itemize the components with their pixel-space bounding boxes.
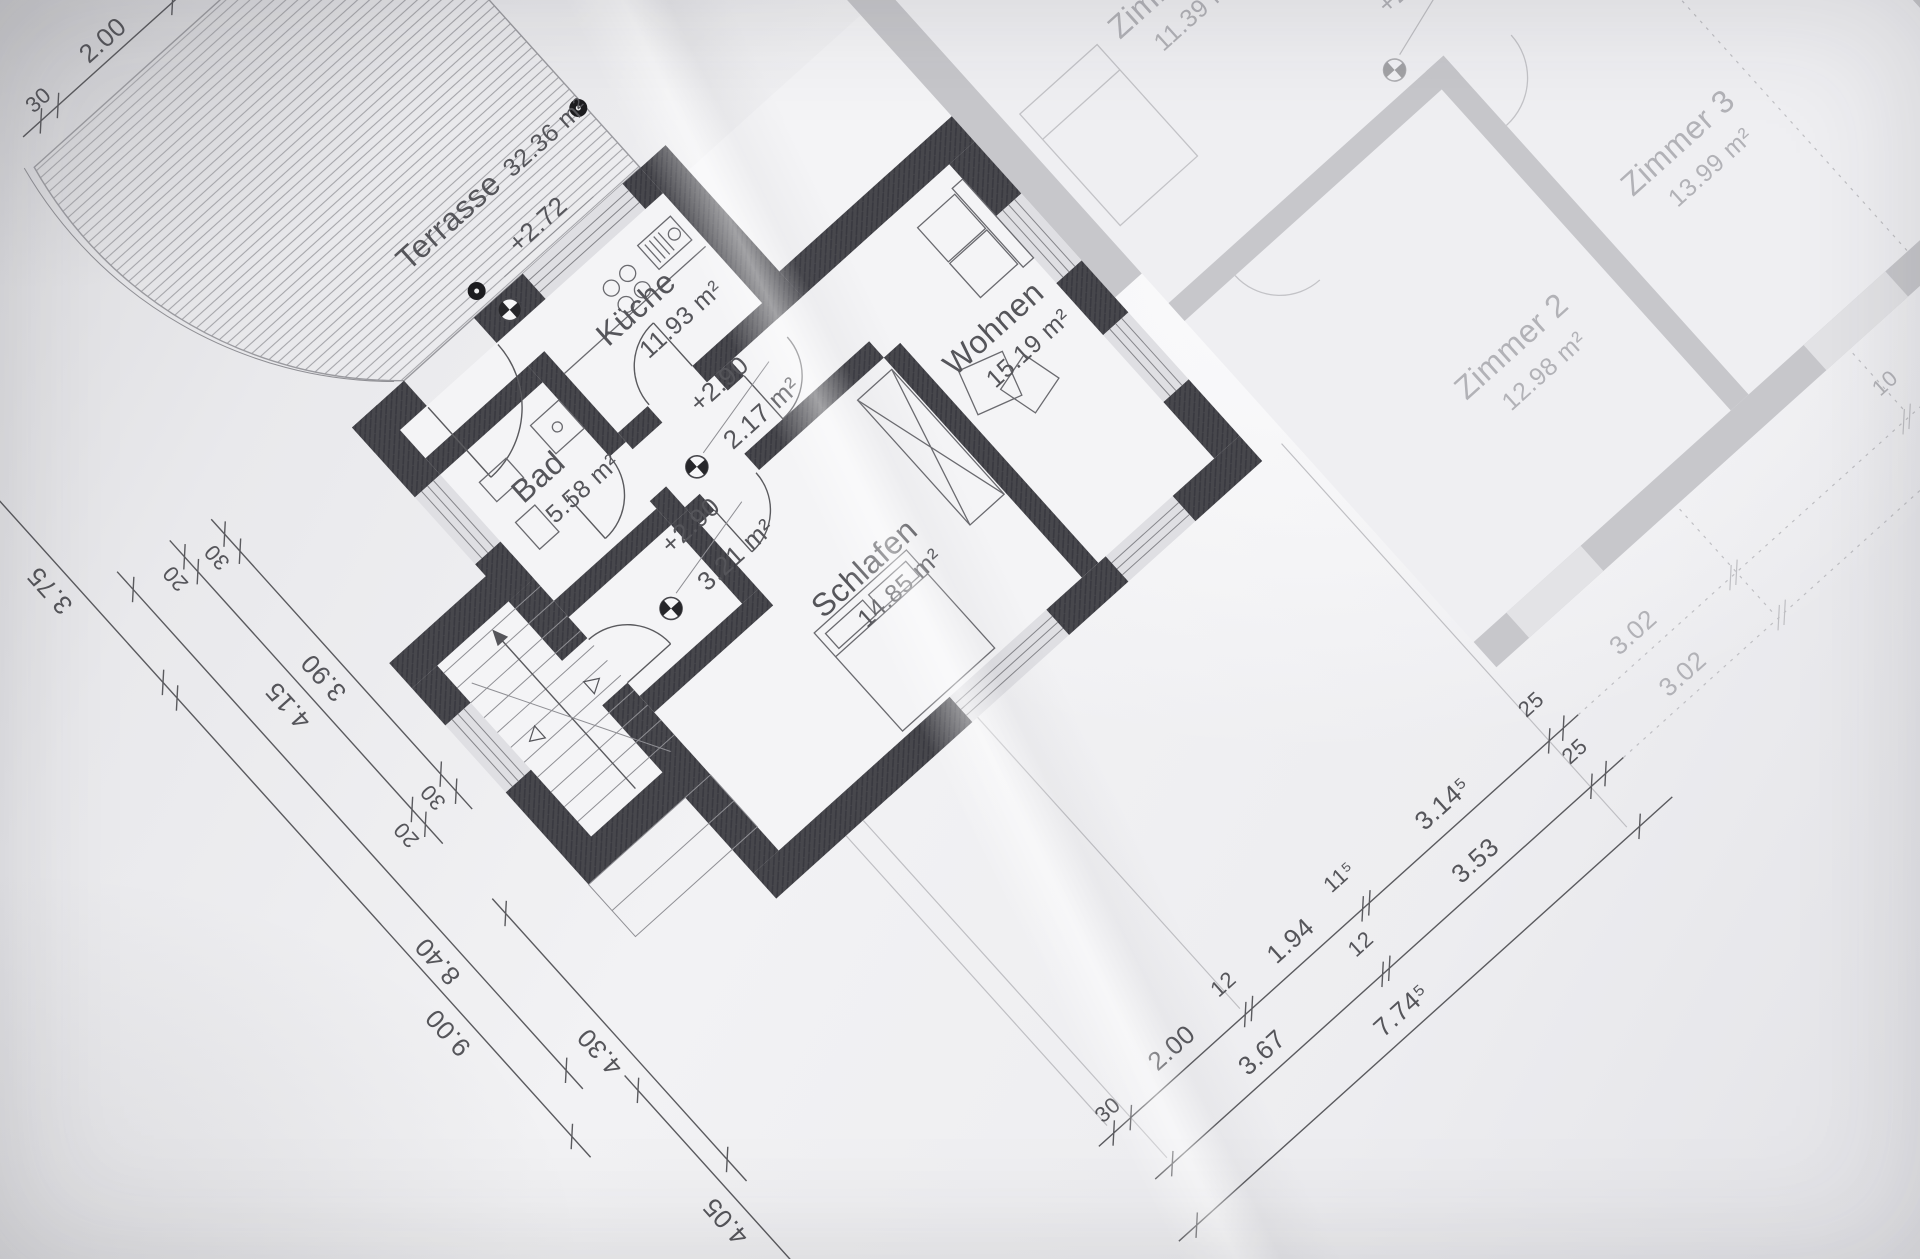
dim-label: 8.40 xyxy=(408,932,466,991)
dim-label: 7.74⁵ xyxy=(1367,977,1435,1042)
dim-label: 3.02 xyxy=(1653,645,1712,703)
dim-label: 20 xyxy=(388,817,424,853)
dim-label: 3.53 xyxy=(1445,831,1504,889)
dim-label: 30 xyxy=(1090,1092,1126,1128)
dim-label: 30 xyxy=(415,780,451,816)
dim-label: 20 xyxy=(157,561,193,597)
dim-label: 3.02 xyxy=(1603,603,1662,661)
dim-label: 1.94 xyxy=(1260,912,1319,970)
dim-label: 30 xyxy=(199,540,235,576)
dim-label: 3.14⁵ xyxy=(1409,771,1477,836)
dim-label: 4.30 xyxy=(571,1023,629,1082)
dim-label: 3.75 xyxy=(21,561,79,620)
dim-label: 2.00 xyxy=(1142,1019,1201,1077)
dim-label: 25 xyxy=(1513,686,1549,722)
dim-label: 3.90 xyxy=(294,648,352,707)
dim-label: 4.05 xyxy=(696,1192,754,1251)
dim-label: 25 xyxy=(1557,733,1593,769)
plan-group: Terrasse 32.36 m² Küche 11.93 m² Bad 5.5… xyxy=(0,0,1920,1259)
floorplan-svg: Terrasse 32.36 m² Küche 11.93 m² Bad 5.5… xyxy=(0,0,1920,1259)
dim-label: 9.00 xyxy=(419,1003,477,1062)
floorplan-photo: Terrasse 32.36 m² Küche 11.93 m² Bad 5.5… xyxy=(0,0,1920,1259)
dim-label: 4.15 xyxy=(259,676,317,735)
dim-label: 11⁵ xyxy=(1318,856,1360,897)
dim-label: 3.67 xyxy=(1232,1023,1291,1081)
dim-label: 2.00 xyxy=(73,11,132,69)
dim-label: 12 xyxy=(1343,926,1379,962)
dim-label: 10 xyxy=(1867,365,1903,401)
dim-label: 12 xyxy=(1205,966,1241,1002)
